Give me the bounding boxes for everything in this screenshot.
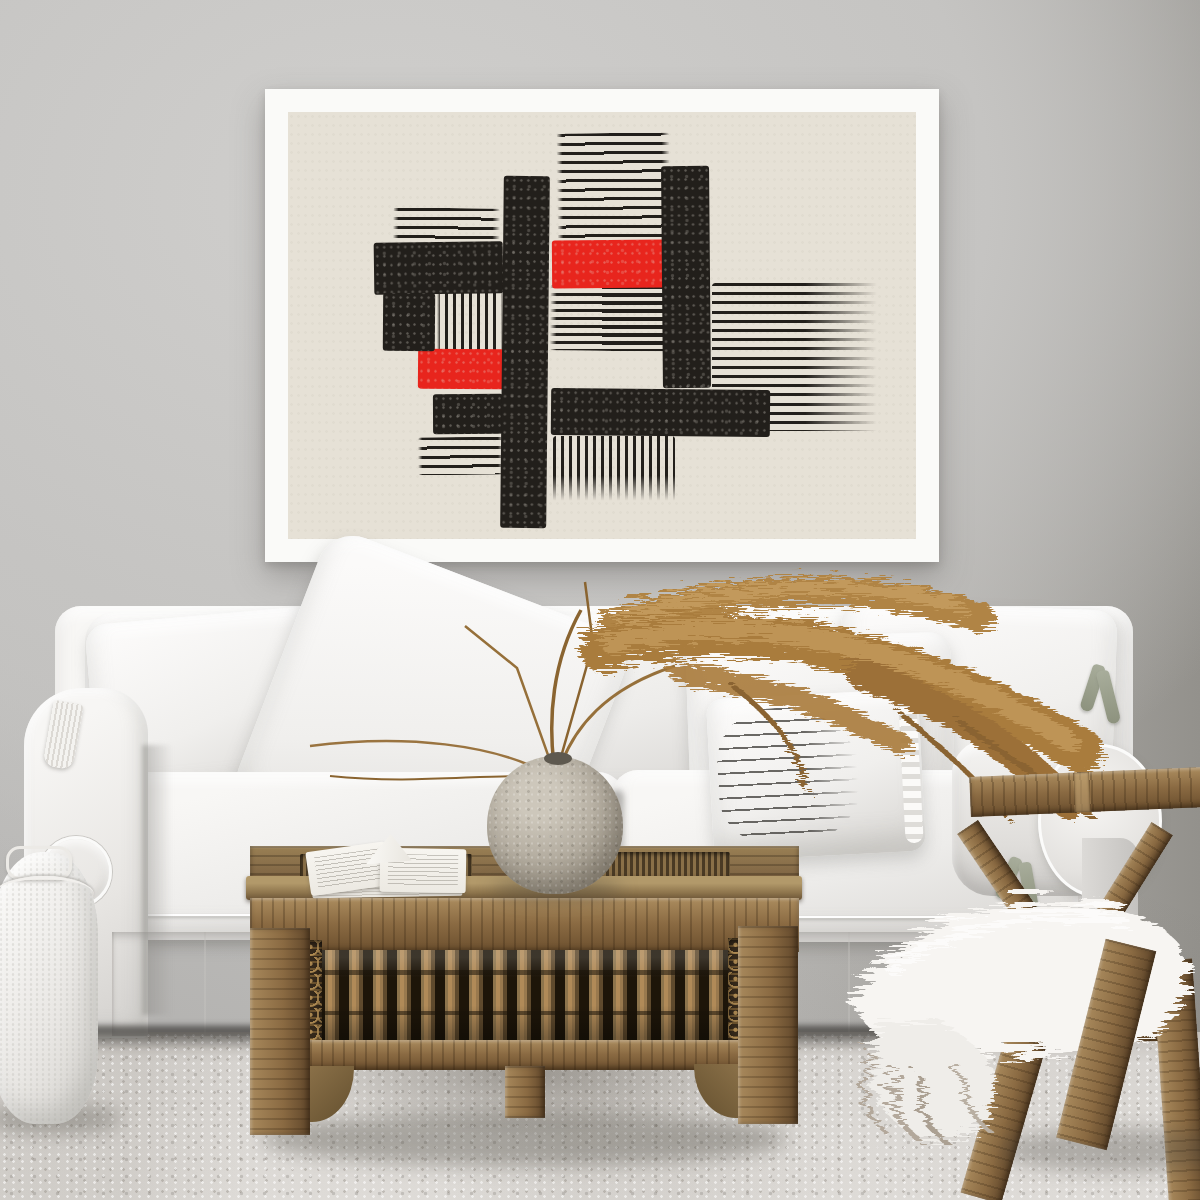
art-block-black (661, 166, 711, 388)
living-room-scene (0, 0, 1200, 1200)
art-block-hlines (393, 208, 500, 245)
art-block-hlines (418, 437, 504, 476)
art-block-black (551, 388, 770, 437)
table-spindle-gallery (298, 950, 752, 1042)
open-book (307, 839, 472, 904)
chair-armrest (969, 767, 1200, 817)
poster-frame (265, 89, 939, 562)
poster-art (288, 112, 916, 539)
vase-mouth (544, 752, 572, 765)
art-block-black (374, 241, 504, 295)
art-block-red (418, 349, 504, 390)
table-leg-left (250, 928, 310, 1135)
art-block-hlines (556, 132, 670, 240)
art-block-vlines (553, 436, 675, 502)
art-block-red (552, 240, 667, 289)
art-block-vlines (437, 290, 503, 351)
art-block-black (383, 293, 435, 351)
stone-vase (487, 756, 623, 894)
table-apron (250, 898, 799, 952)
table-center-post (505, 1066, 545, 1118)
armrest-tenon-joint (1073, 772, 1091, 813)
pouf-handle (6, 846, 72, 880)
table-leg-right (738, 926, 798, 1124)
art-block-black (500, 176, 550, 528)
art-block-black (433, 394, 503, 434)
